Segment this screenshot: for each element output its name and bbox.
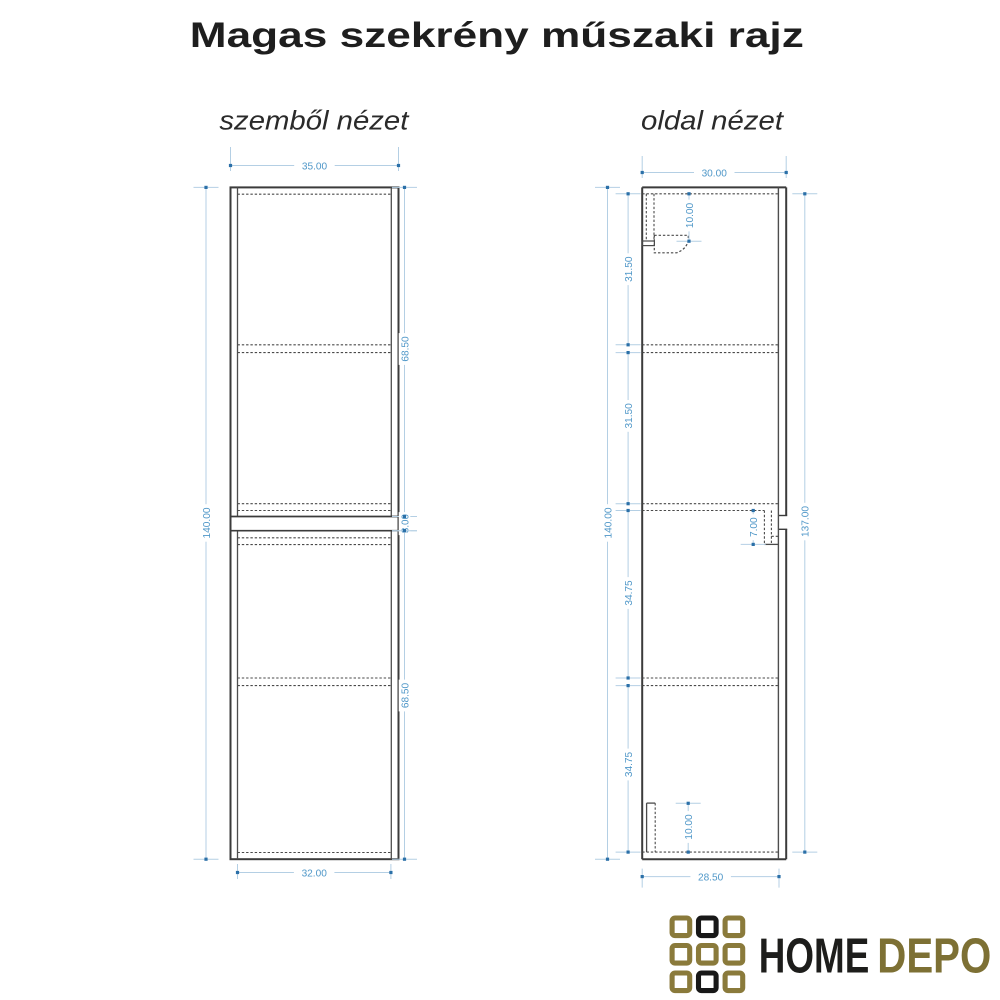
svg-text:68.50: 68.50 <box>400 682 411 708</box>
svg-text:szemből nézet: szemből nézet <box>219 106 410 136</box>
svg-text:Magas szekrény műszaki rajz: Magas szekrény műszaki rajz <box>190 15 804 55</box>
svg-text:34.75: 34.75 <box>624 751 635 777</box>
svg-text:10.00: 10.00 <box>685 202 696 228</box>
svg-text:DEPO: DEPO <box>877 929 991 984</box>
svg-text:31.50: 31.50 <box>624 256 635 282</box>
svg-text:35.00: 35.00 <box>302 161 328 172</box>
svg-text:30.00: 30.00 <box>702 168 728 179</box>
svg-text:31.50: 31.50 <box>624 403 635 429</box>
svg-text:137.00: 137.00 <box>801 506 812 537</box>
svg-text:10.00: 10.00 <box>684 814 695 840</box>
svg-text:oldal nézet: oldal nézet <box>641 106 785 136</box>
svg-text:34.75: 34.75 <box>624 580 635 606</box>
svg-text:32.00: 32.00 <box>302 868 328 879</box>
svg-text:28.50: 28.50 <box>698 873 724 884</box>
svg-text:HOME: HOME <box>759 929 870 984</box>
svg-text:68.50: 68.50 <box>400 336 411 362</box>
svg-text:140.00: 140.00 <box>603 507 614 538</box>
svg-text:140.00: 140.00 <box>202 507 213 538</box>
svg-text:7.00: 7.00 <box>749 517 760 537</box>
